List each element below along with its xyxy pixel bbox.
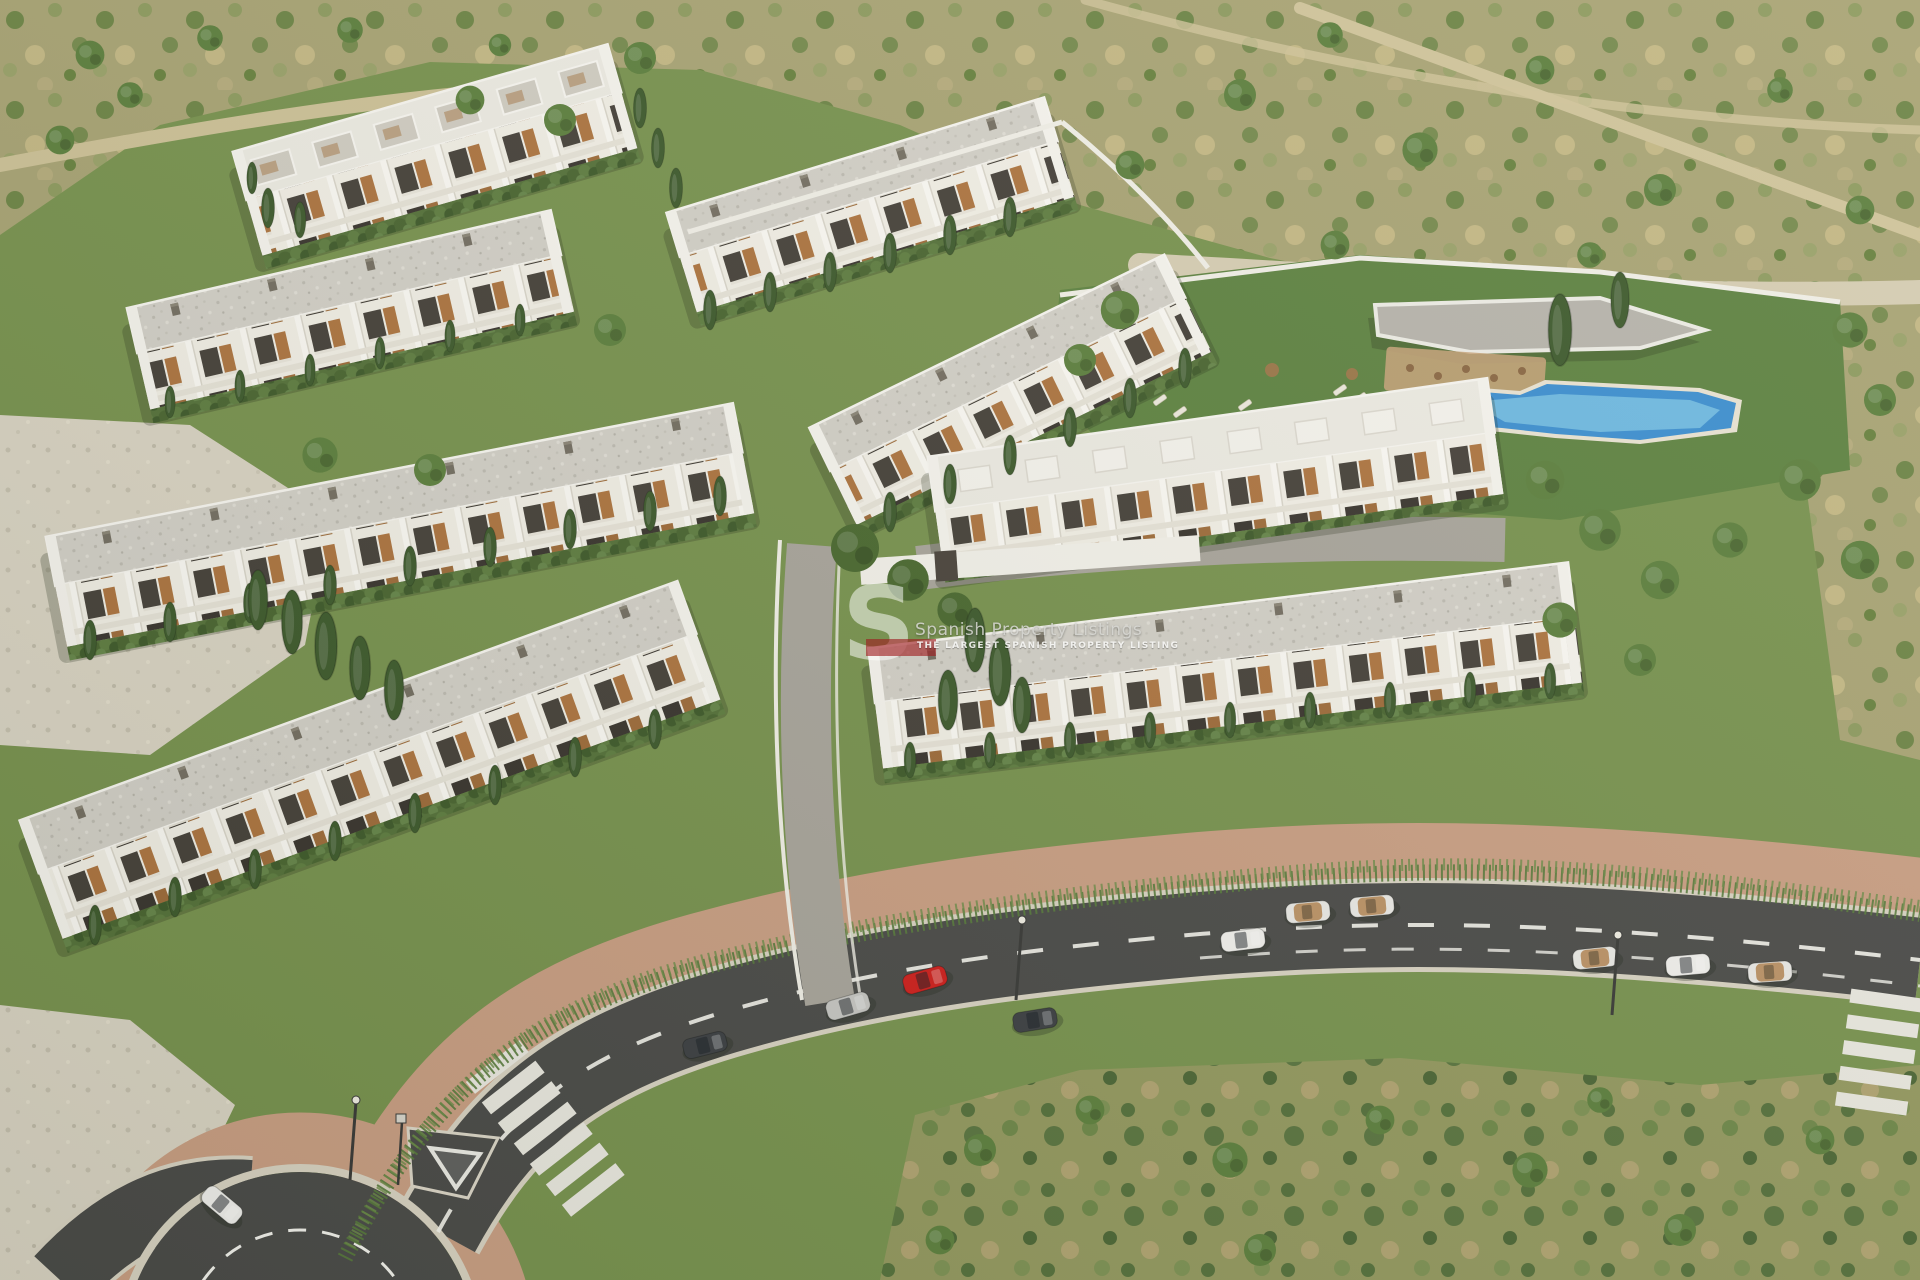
- light-shade-overlay: [0, 0, 1920, 1280]
- scene-svg: [0, 0, 1920, 1280]
- aerial-development-render: S Spanish Property Listings THE LARGEST …: [0, 0, 1920, 1280]
